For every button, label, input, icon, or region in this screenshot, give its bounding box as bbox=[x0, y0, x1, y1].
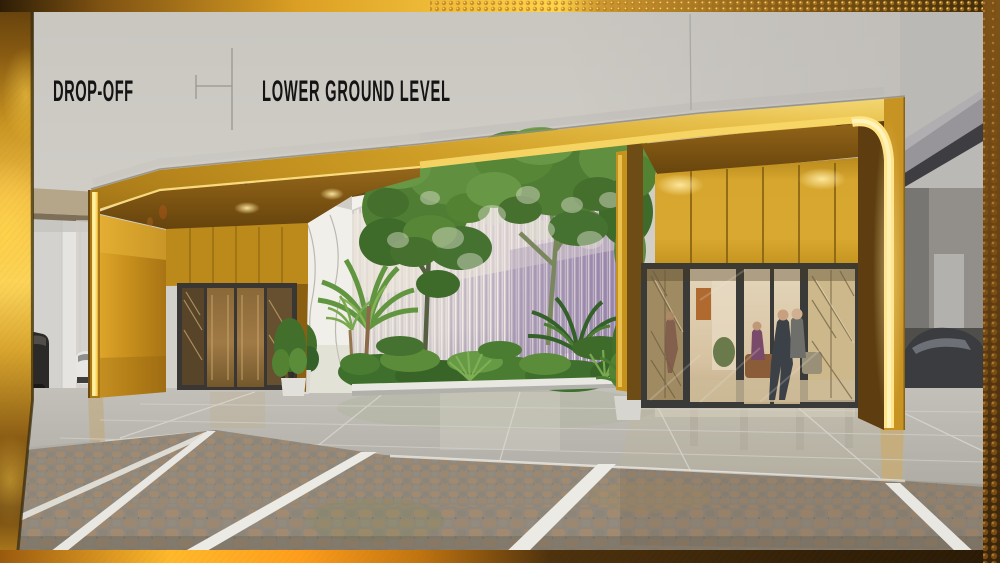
svg-text:LOWER GROUND LEVEL: LOWER GROUND LEVEL bbox=[262, 76, 451, 109]
svg-text:DROP-OFF: DROP-OFF bbox=[53, 76, 134, 109]
